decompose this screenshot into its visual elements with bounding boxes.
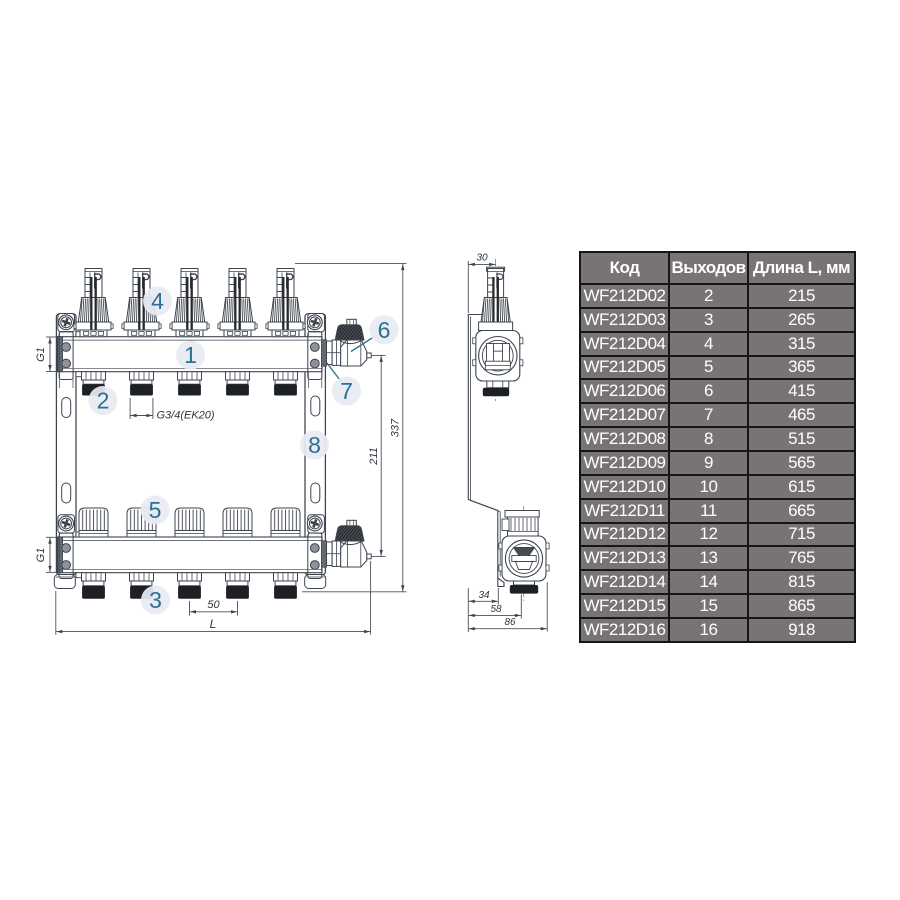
svg-text:34: 34 [478,590,490,601]
svg-text:337: 337 [390,418,402,437]
svg-text:30: 30 [476,253,488,264]
svg-text:1: 1 [184,342,197,368]
svg-text:8: 8 [308,432,321,458]
svg-text:3: 3 [149,587,162,613]
svg-text:7: 7 [340,378,353,404]
svg-text:50: 50 [207,599,220,611]
svg-text:G1: G1 [35,548,47,563]
svg-text:58: 58 [490,604,502,615]
svg-text:211: 211 [368,447,380,466]
svg-text:G1: G1 [35,347,47,362]
svg-text:2: 2 [97,388,110,414]
svg-text:L: L [210,617,217,631]
svg-text:86: 86 [504,617,516,628]
svg-text:G3/4(EK20): G3/4(EK20) [157,410,215,422]
svg-text:5: 5 [149,497,162,523]
svg-text:6: 6 [378,317,391,343]
svg-text:4: 4 [151,288,164,314]
